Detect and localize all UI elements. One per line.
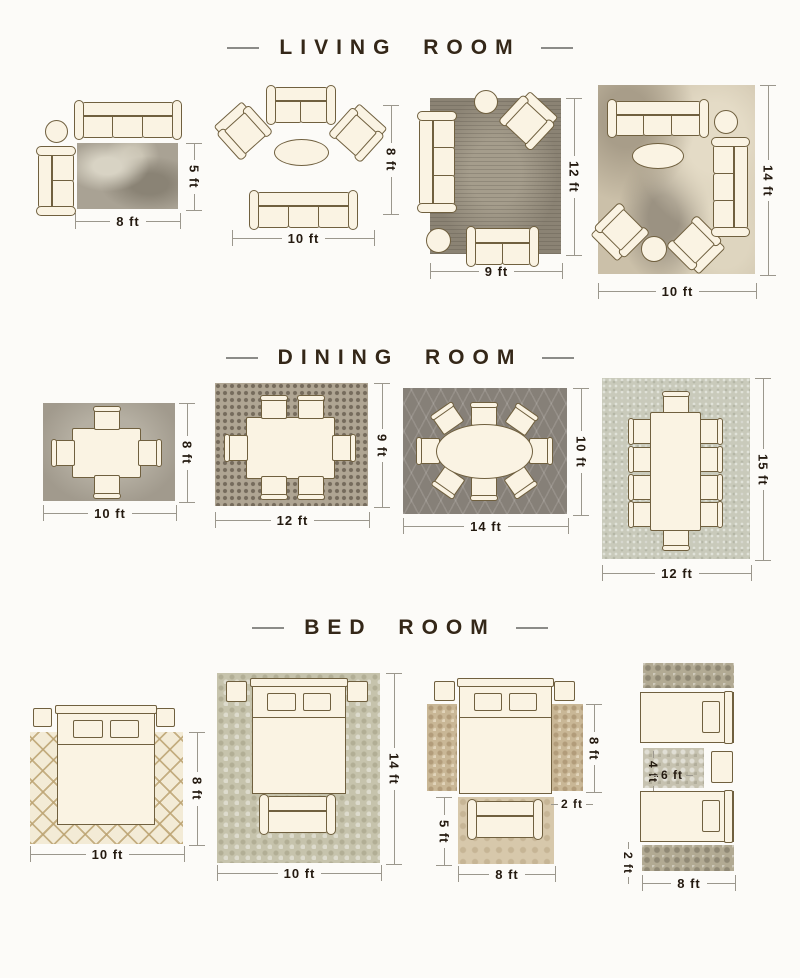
- dimension-label: 2 ft: [621, 849, 635, 877]
- nightstand: [434, 681, 455, 701]
- nightstand: [711, 751, 733, 783]
- dimension-label: 10 ft: [86, 847, 130, 862]
- bed: [252, 680, 346, 794]
- pillow: [702, 800, 720, 832]
- pillow: [509, 693, 537, 712]
- dimension-mid-rug-width: 6 ft: [651, 767, 701, 783]
- bench: [467, 801, 543, 838]
- twin-bed: [640, 692, 734, 743]
- dimension-foot-rug-height: 5 ft: [436, 797, 452, 866]
- sofa-arm: [36, 146, 76, 156]
- runner-rug: [552, 704, 583, 791]
- sofa-arm: [74, 100, 84, 140]
- dimension-width: 10 ft: [30, 846, 185, 862]
- runner-rug: [643, 663, 734, 688]
- nightstand: [156, 708, 175, 727]
- sofa-arm: [529, 226, 539, 267]
- headboard: [724, 790, 733, 843]
- runner-rug: [427, 704, 457, 791]
- sofa-arm: [36, 206, 76, 216]
- pillow: [267, 693, 296, 712]
- pillow: [73, 720, 103, 739]
- pillow: [110, 720, 140, 739]
- dimension-label: 8 ft: [489, 867, 525, 882]
- dimension-runner-length: 8 ft: [642, 875, 736, 891]
- bed-room-section: 8 ft 10 ft 14 ft 10 ft: [0, 0, 800, 978]
- nightstand: [33, 708, 52, 727]
- bench-back: [267, 796, 328, 811]
- bed-head-area: [460, 687, 551, 718]
- dimension-label: 10 ft: [278, 866, 322, 881]
- bench-arm: [259, 794, 269, 835]
- sofa-arm: [172, 100, 182, 140]
- dimension-height: 14 ft: [386, 673, 402, 865]
- sofa-arm: [711, 227, 750, 237]
- dimension-label: 8 ft: [671, 876, 707, 891]
- bed: [57, 707, 155, 825]
- bench: [259, 796, 336, 833]
- headboard: [724, 691, 733, 744]
- runner-rug: [642, 845, 734, 871]
- rug-size-guide-infographic: LIVING ROOM 5 ft 8 ft: [0, 0, 800, 978]
- dimension-label: 14 ft: [387, 748, 402, 790]
- sofa-arm: [711, 137, 750, 147]
- nightstand: [226, 681, 247, 702]
- dimension-width: 10 ft: [217, 865, 382, 881]
- bed-head-area: [58, 714, 154, 745]
- sofa-arm: [417, 111, 457, 121]
- sofa-arm: [466, 226, 476, 267]
- pillow: [303, 693, 332, 712]
- nightstand: [554, 681, 575, 701]
- bed: [459, 680, 552, 794]
- sofa-arm: [607, 99, 617, 138]
- bench-cushion: [475, 816, 535, 838]
- sofa-arm: [249, 190, 259, 230]
- dimension-runner-width: 2 ft: [620, 842, 636, 873]
- nightstand: [347, 681, 368, 702]
- pillow: [474, 693, 502, 712]
- bench-arm: [467, 799, 477, 840]
- sofa-arm: [417, 203, 457, 213]
- sofa-arm: [699, 99, 709, 138]
- headboard: [457, 678, 554, 687]
- bench-cushion: [267, 811, 328, 833]
- pillow: [702, 701, 720, 733]
- bench-arm: [326, 794, 336, 835]
- sofa-arm: [266, 85, 276, 125]
- dimension-label: 5 ft: [437, 815, 452, 849]
- dimension-runner-width: 2 ft: [551, 796, 589, 812]
- headboard: [250, 678, 348, 687]
- dimension-label: 8 ft: [587, 732, 602, 766]
- dimension-label: 6 ft: [658, 768, 686, 782]
- bed-head-area: [253, 687, 345, 718]
- dimension-label: 8 ft: [190, 772, 205, 806]
- headboard: [55, 705, 157, 714]
- bench-back: [475, 801, 535, 816]
- dimension-label: 2 ft: [558, 797, 586, 811]
- dimension-runner-length: 8 ft: [586, 704, 602, 793]
- dimension-foot-rug-width: 8 ft: [458, 866, 556, 882]
- sofa-arm: [326, 85, 336, 125]
- bench-arm: [533, 799, 543, 840]
- twin-bed: [640, 791, 734, 842]
- dimension-height: 8 ft: [189, 732, 205, 846]
- sofa-arm: [348, 190, 358, 230]
